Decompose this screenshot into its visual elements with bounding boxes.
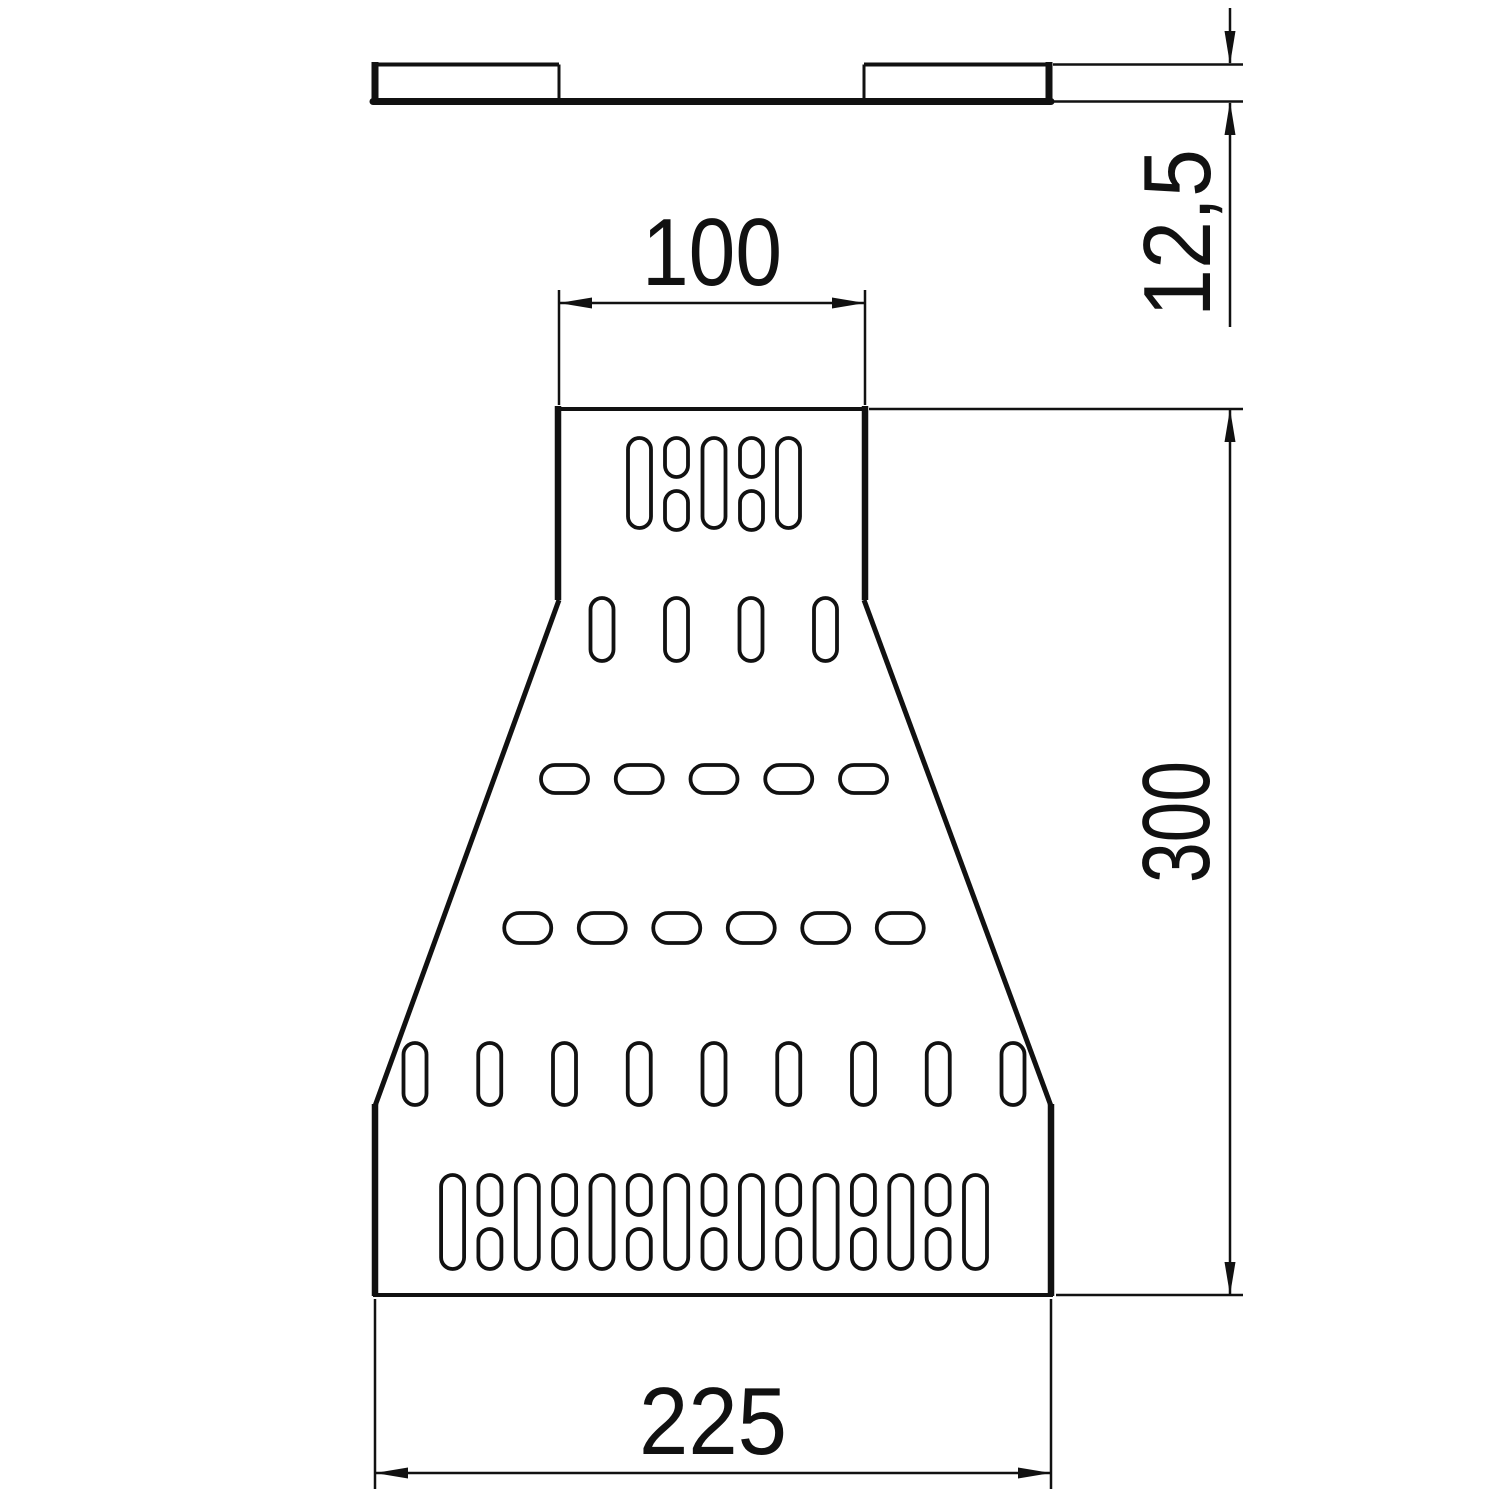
perforation-row-horizontal-6: [504, 913, 924, 943]
slot-medium: [927, 1043, 950, 1105]
slot-long: [703, 438, 726, 528]
slot-short: [852, 1229, 875, 1269]
slot-short: [852, 1175, 875, 1215]
slot-medium: [591, 598, 614, 661]
slot-medium: [777, 1043, 800, 1105]
slot-short: [478, 1229, 501, 1269]
slot-short: [478, 1175, 501, 1215]
slot-horizontal: [691, 765, 738, 793]
perforation-row-vertical-9: [404, 1043, 1025, 1105]
slot-medium: [478, 1043, 501, 1105]
dimension-height: 300: [869, 409, 1243, 1295]
slot-medium: [814, 598, 837, 661]
arrowhead-up-icon: [1225, 409, 1236, 442]
slot-medium: [1002, 1043, 1025, 1105]
arrowhead-down-icon: [1225, 1262, 1236, 1295]
slot-short: [927, 1175, 950, 1215]
thickness-label: 12,5: [1124, 149, 1231, 317]
slot-short: [777, 1175, 800, 1215]
slot-medium: [553, 1043, 576, 1105]
slot-long: [889, 1175, 912, 1269]
slot-short: [553, 1229, 576, 1269]
arrowhead-right-icon: [832, 298, 865, 309]
slot-long: [665, 1175, 688, 1269]
slot-medium: [628, 1043, 651, 1105]
plan-left-slant-edge: [375, 600, 559, 1106]
slot-short: [665, 491, 688, 530]
slot-long: [964, 1175, 987, 1269]
height-label: 300: [1123, 761, 1230, 883]
side-view-profile: [372, 62, 1051, 102]
slot-short: [628, 1229, 651, 1269]
slot-horizontal: [765, 765, 812, 793]
slot-short: [703, 1229, 726, 1269]
arrowhead-up-icon: [1225, 102, 1236, 136]
slot-horizontal: [877, 913, 924, 943]
slot-short: [777, 1229, 800, 1269]
slot-horizontal: [653, 913, 700, 943]
slot-medium: [740, 598, 763, 661]
slot-short: [927, 1229, 950, 1269]
slot-short: [703, 1175, 726, 1215]
slot-short: [740, 438, 763, 477]
slot-long: [516, 1175, 539, 1269]
slot-short: [740, 491, 763, 530]
perforation-row-horizontal-5: [541, 765, 887, 793]
slot-horizontal: [728, 913, 775, 943]
slot-long: [740, 1175, 763, 1269]
dimension-thickness: 12,5: [1053, 8, 1243, 327]
slot-long: [815, 1175, 838, 1269]
slot-horizontal: [802, 913, 849, 943]
dimension-top-width: 100: [559, 199, 865, 405]
slot-medium: [703, 1043, 726, 1105]
slot-horizontal: [616, 765, 663, 793]
slot-medium: [852, 1043, 875, 1105]
slot-horizontal: [579, 913, 626, 943]
plan-view-outline: [373, 406, 1053, 1296]
perforation-row-transition: [591, 598, 838, 661]
slot-horizontal: [504, 913, 551, 943]
plan-right-slant-edge: [864, 600, 1051, 1106]
arrowhead-left-icon: [559, 298, 592, 309]
bottom-width-label: 225: [639, 1368, 787, 1475]
slot-medium: [404, 1043, 427, 1105]
technical-drawing: 12,5: [0, 0, 1500, 1500]
top-width-label: 100: [642, 199, 782, 306]
slot-short: [553, 1175, 576, 1215]
dimension-bottom-width: 225: [375, 1299, 1051, 1489]
slot-horizontal: [840, 765, 887, 793]
arrowhead-left-icon: [375, 1468, 408, 1479]
slot-long: [777, 438, 800, 528]
arrowhead-right-icon: [1018, 1468, 1051, 1479]
slot-long: [628, 438, 651, 528]
slot-long: [441, 1175, 464, 1269]
perforation-row-bottom-group: [441, 1175, 987, 1269]
arrowhead-down-icon: [1225, 31, 1236, 65]
slot-horizontal: [541, 765, 588, 793]
slot-medium: [665, 598, 688, 661]
slot-long: [591, 1175, 614, 1269]
slot-short: [628, 1175, 651, 1215]
perforation-row-top-group: [628, 438, 800, 530]
slot-short: [665, 438, 688, 477]
drawing-canvas: 12,5: [0, 0, 1500, 1500]
